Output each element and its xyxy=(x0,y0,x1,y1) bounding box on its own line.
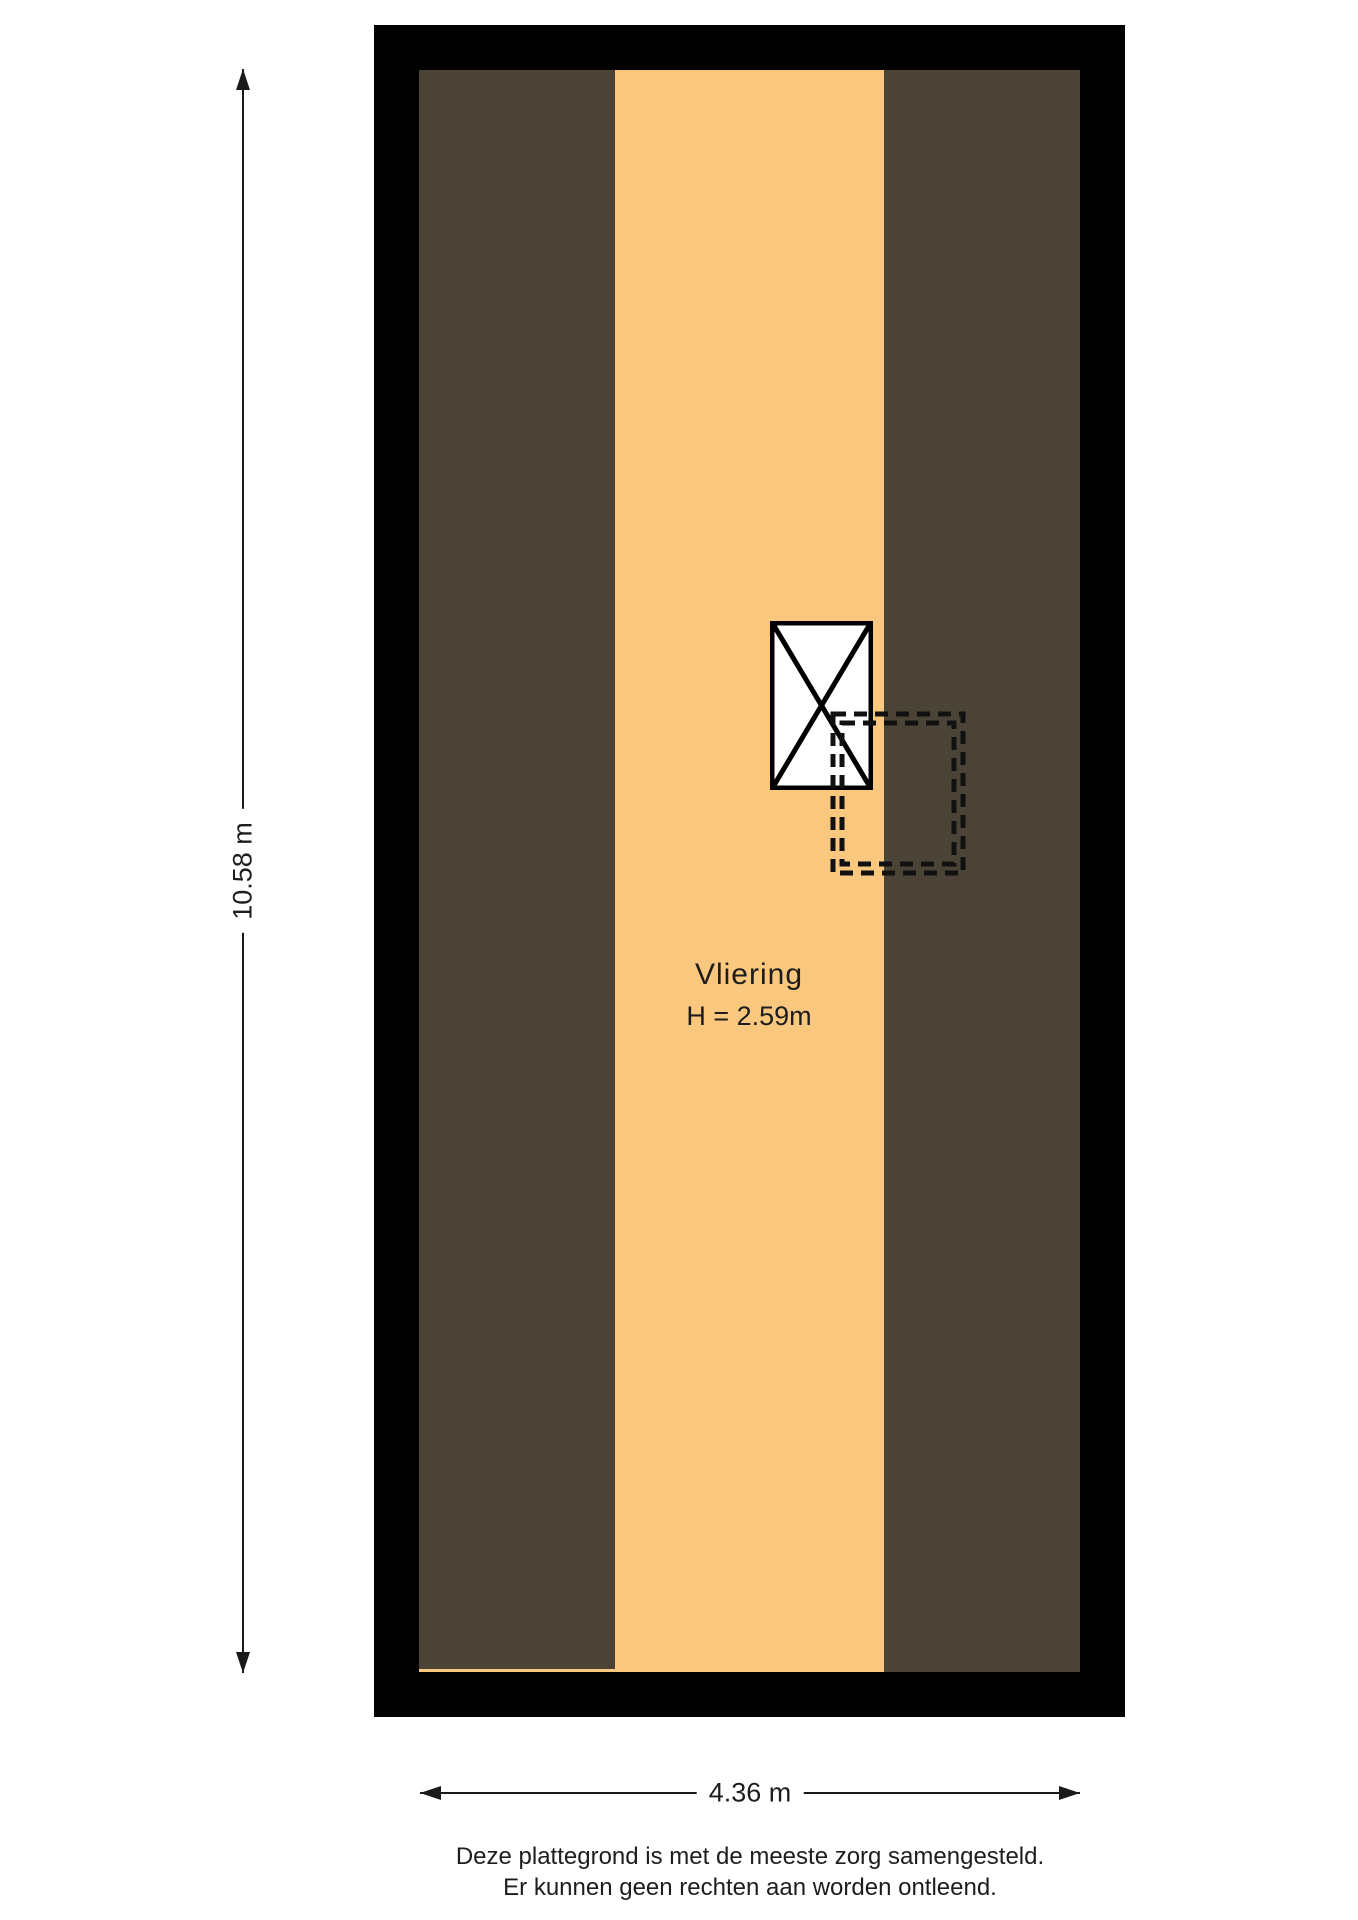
floorplan-attic-walls: Vliering H = 2.59m xyxy=(374,25,1125,1717)
disclaimer: Deze plattegrond is met de meeste zorg s… xyxy=(456,1841,1044,1903)
room-label: Vliering H = 2.59m xyxy=(686,958,811,1032)
arrow-down-icon xyxy=(236,1652,250,1673)
arrow-right-icon xyxy=(1059,1786,1080,1800)
arrow-left-icon xyxy=(420,1786,441,1800)
disclaimer-line-2: Er kunnen geen rechten aan worden ontlee… xyxy=(456,1872,1044,1903)
roof-slope-left xyxy=(419,70,615,1672)
floorplan-page: Vliering H = 2.59m 10.58 m 4.36 m Deze p… xyxy=(0,0,1358,1920)
horizontal-dimension-label: 4.36 m xyxy=(697,1776,804,1811)
arrow-up-icon xyxy=(236,69,250,90)
floor-edge-line xyxy=(419,1669,615,1672)
vertical-dimension-label: 10.58 m xyxy=(219,809,268,933)
room-name: Vliering xyxy=(686,958,811,992)
room-height-label: H = 2.59m xyxy=(686,1001,811,1032)
stair-opening-icon xyxy=(825,706,971,881)
disclaimer-line-1: Deze plattegrond is met de meeste zorg s… xyxy=(456,1841,1044,1872)
floorplan-interior: Vliering H = 2.59m xyxy=(419,70,1080,1672)
